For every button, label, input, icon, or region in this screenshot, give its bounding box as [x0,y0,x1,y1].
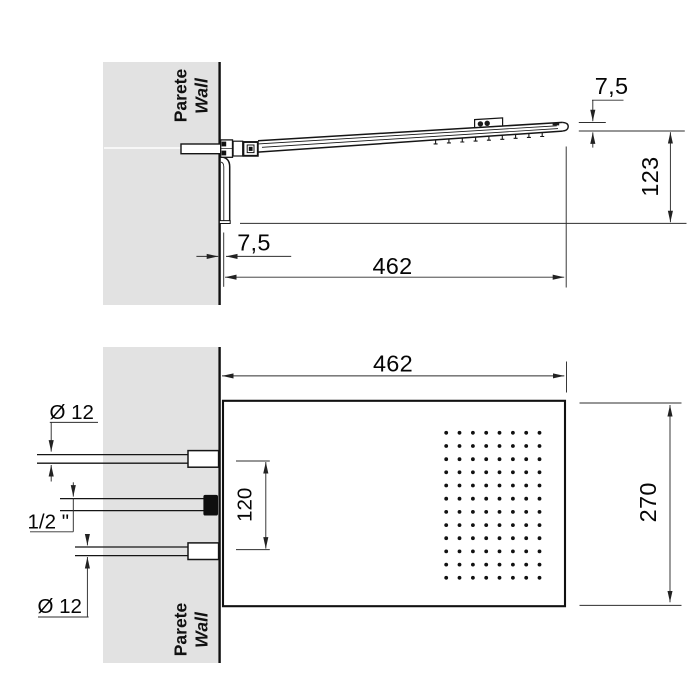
front-dim-length-text: 462 [373,351,413,377]
nozzle-dot [524,576,528,580]
nozzle-dot [511,563,515,567]
nozzle-dot [484,470,488,474]
nozzle-dot [484,444,488,448]
nozzle-dot [524,510,528,514]
nozzle-dot [484,484,488,488]
bracket-outer [221,157,230,221]
head-end-cap [562,122,568,131]
nozzle-dot [524,444,528,448]
nozzle-dot [524,536,528,540]
nozzle-dot [524,563,528,567]
nozzle-dot [498,576,502,580]
nozzle-dot [538,457,542,461]
nozzle-dot [511,484,515,488]
nozzle-dot [471,484,475,488]
nozzle-dot [444,484,448,488]
nozzle-dot [458,497,462,501]
front-wall-label-wall: Wall [192,611,212,648]
nozzle-dot [511,576,515,580]
nozzle-dot [444,497,448,501]
nozzle-dot [511,497,515,501]
nozzle-dot [458,457,462,461]
nozzle-dot [524,484,528,488]
nozzle-dot [444,470,448,474]
nozzle-dot [538,497,542,501]
nozzle-dot [484,576,488,580]
nozzle-dot [471,510,475,514]
nozzle-dot [498,497,502,501]
nozzle-dot [524,431,528,435]
nozzle-dot [458,576,462,580]
nozzle-dot [444,510,448,514]
dim-gap-text: 7,5 [237,229,271,255]
nozzle-dot [471,431,475,435]
nozzle-dot [444,523,448,527]
side-wall-label-parete: Parete [171,68,191,122]
nozzle-dot [524,523,528,527]
nozzle-dot [484,457,488,461]
nozzle-dot [511,550,515,554]
nozzle-dot [471,523,475,527]
nozzle-dot [458,563,462,567]
nozzle-dot [458,523,462,527]
nozzle-dot [484,536,488,540]
nozzle-dot [458,444,462,448]
nozzle-dot [444,576,448,580]
technical-drawing-page: Parete Wall [0,0,700,700]
nozzle-dot [511,510,515,514]
dim-length-text: 462 [372,253,412,279]
nozzle-dot [484,550,488,554]
nozzle-dot [524,457,528,461]
pipe-top-union [188,451,219,468]
nozzle-dot [458,536,462,540]
nozzle-dot [511,444,515,448]
head-end-detail [553,123,560,126]
nozzle-dot [471,550,475,554]
bracket-foot [219,221,230,224]
front-wall-label-parete: Parete [171,602,191,656]
nozzle-dot [471,457,475,461]
nozzle-dot [444,563,448,567]
nozzle-dot [498,563,502,567]
nozzle-dot [498,457,502,461]
joint-box-b [233,141,243,156]
nozzle-dot [498,550,502,554]
nozzle-dot [498,444,502,448]
nozzle-dot [498,484,502,488]
shower-head-technical-drawing: Parete Wall [0,0,700,700]
nozzle-dot [538,510,542,514]
nozzle-dot [498,510,502,514]
nozzle-dot [458,431,462,435]
nozzle-dot [498,470,502,474]
nozzle-dot [511,536,515,540]
nozzle-dot [498,536,502,540]
nozzle-dot [511,431,515,435]
nozzle-dot [538,536,542,540]
dim-drop-text: 123 [637,156,663,196]
nozzle-dot [538,484,542,488]
nozzle-dot [471,497,475,501]
nozzle-dot [524,497,528,501]
nozzle-dot [524,470,528,474]
front-view: Parete Wall 462 270 120 Ø 12 1/2 " [28,347,682,663]
nozzle-dot [524,550,528,554]
nozzle-dot [484,510,488,514]
nozzle-dot [444,457,448,461]
joint-box-a-detail-top [222,142,227,147]
nozzle-dot [444,536,448,540]
side-view: Parete Wall [103,62,687,305]
nozzle-dot [471,470,475,474]
water-inlet-connector [203,495,218,516]
nozzle-dot [484,523,488,527]
bracket-inner [221,162,224,221]
dim-bottom-hole-text: Ø 12 [38,595,82,618]
nozzle-dot [511,457,515,461]
nozzle-dot [471,563,475,567]
nozzle-dot [511,470,515,474]
nozzle-dot [458,550,462,554]
dim-thickness-text: 7,5 [595,73,629,99]
nozzle-dot [498,431,502,435]
nozzle-dot [538,523,542,527]
nozzle-dot [538,550,542,554]
nozzle-dot [444,550,448,554]
nozzle-dot [498,523,502,527]
dim-top-hole-text: Ø 12 [50,401,94,424]
side-wall-pipe-stub [181,144,221,154]
side-wall-label-wall: Wall [192,77,212,114]
swivel-bolt-left [478,121,483,126]
nozzle-dot [511,523,515,527]
nozzle-dot [538,576,542,580]
swivel-bolt-right [485,121,490,126]
side-dimensions: 7,5 123 7,5 462 [196,73,686,288]
front-dim-width-text: 270 [635,482,661,522]
nozzle-dot [538,444,542,448]
nozzle-dot [458,470,462,474]
nozzle-dot [538,470,542,474]
nozzle-dot [458,484,462,488]
pipe-bottom-union [188,543,219,560]
joint-box-a-detail-bottom [222,151,227,156]
dim-spacing-text: 120 [233,488,256,522]
nozzle-dot [471,444,475,448]
nozzle-dot [444,444,448,448]
nozzle-dot [458,510,462,514]
nozzle-dot [538,431,542,435]
nozzle-dot [484,563,488,567]
nozzle-dot [444,431,448,435]
joint-box-c-screw [249,147,253,151]
side-shower-head [181,118,568,224]
dim-thread-text: 1/2 " [28,511,69,534]
nozzle-dot [484,497,488,501]
nozzle-dot [471,576,475,580]
nozzle-dot [484,431,488,435]
nozzle-dot [538,563,542,567]
nozzle-dot [471,536,475,540]
